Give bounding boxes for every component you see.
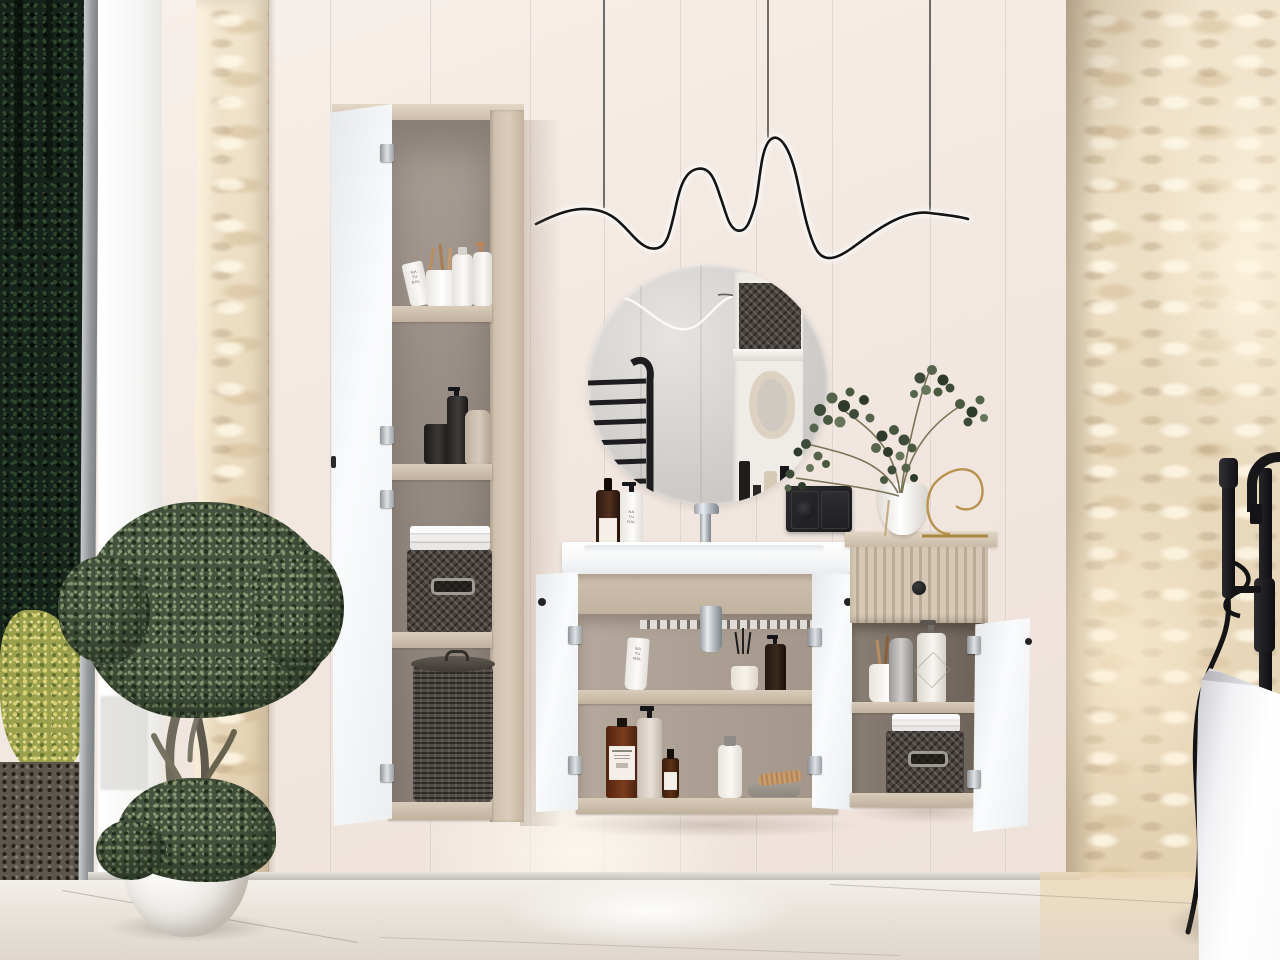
small-cabinet-bottom <box>850 793 987 807</box>
white-cylinder-bottle <box>718 745 742 798</box>
door-hinge <box>967 636 981 654</box>
basin-countertop <box>562 542 850 574</box>
shelf-board <box>390 306 492 322</box>
door-hinge <box>808 756 822 774</box>
white-pump-bottle <box>917 633 946 703</box>
pump-spout <box>767 635 778 639</box>
storage-basket <box>407 550 492 632</box>
reflected-shelf-board <box>733 349 803 361</box>
jamb-reflection <box>100 696 148 790</box>
drawer-knob[interactable] <box>912 581 926 595</box>
siphon-trap <box>700 606 722 652</box>
clear-pump-bottle <box>637 718 662 798</box>
faucet-spout <box>694 503 719 514</box>
stone-column-shadow <box>268 0 276 886</box>
bathtub <box>1192 668 1280 960</box>
diamond-etch <box>914 652 950 688</box>
bottle-label <box>609 746 635 780</box>
tree-canopy-lobe <box>58 556 150 664</box>
small-cabinet-top <box>845 532 997 547</box>
mirror-panel-line <box>700 265 702 505</box>
pump-spout <box>448 387 460 391</box>
tall-cabinet-bottom <box>388 802 492 820</box>
pump-spout <box>622 482 636 486</box>
makeup-brush <box>742 628 744 654</box>
fluted-drawer[interactable] <box>850 547 988 623</box>
door-hinge <box>568 756 582 774</box>
tree-base-bush-lobe <box>96 820 166 880</box>
wand-holder-arm <box>1233 586 1261 593</box>
door-hinge <box>380 764 394 782</box>
stone-column-left <box>193 0 269 886</box>
beige-bottle <box>465 410 491 464</box>
mirror-panel-line <box>640 265 642 505</box>
dropper-bottle <box>662 758 679 798</box>
tree-trunk-outside <box>14 0 23 230</box>
small-cabinet-shelf <box>852 702 985 713</box>
cosmetic-tube: NA TU RAL <box>624 637 650 690</box>
shower-wand-head <box>1219 458 1238 488</box>
basket-handle-slot <box>431 578 475 595</box>
dropper-cap <box>667 749 674 759</box>
pump-spout <box>640 706 654 711</box>
door-knob[interactable] <box>538 598 546 606</box>
bottle-cap <box>724 736 736 746</box>
vanity-door-left[interactable] <box>536 572 578 812</box>
basket-handle-slot <box>908 751 948 767</box>
mirror-reflected-niche <box>733 271 803 505</box>
bathroom-scene: NA TU RAL <box>0 0 1280 960</box>
bottle-cap <box>617 718 627 727</box>
soap-tray <box>748 783 800 797</box>
shelf-board <box>390 632 492 648</box>
tree-canopy-lobe <box>252 548 344 670</box>
pump-spout <box>475 242 485 246</box>
door-hinge <box>967 770 981 788</box>
round-mirror <box>588 265 828 505</box>
reflected-basket <box>739 283 801 349</box>
small-cabinet-door[interactable] <box>973 618 1030 832</box>
tall-cabinet: NA TU RAL <box>328 96 528 832</box>
laundry-basket <box>413 662 493 802</box>
amber-rect-bottle <box>606 726 638 798</box>
dropper-cap <box>604 478 612 491</box>
floor-light-patch <box>500 876 800 946</box>
vanity-shelf-board <box>578 690 836 704</box>
mounting-rail <box>640 620 826 629</box>
door-knob[interactable] <box>1025 638 1032 645</box>
pump-bottle-white <box>473 252 492 306</box>
bottle-label-text: NA TU RAL <box>620 510 643 524</box>
door-hinge <box>380 490 394 508</box>
folded-towels <box>892 714 960 732</box>
amber-dropper-bottle <box>596 490 620 550</box>
small-cabinet <box>845 532 1035 832</box>
pump-spout <box>920 620 936 625</box>
silver-bottle <box>889 638 913 703</box>
dark-pump-bottle <box>765 644 786 691</box>
white-bottle <box>452 254 473 306</box>
door-hinge <box>380 144 394 162</box>
cosmetic-tube-label: NA TU RAL <box>403 268 427 287</box>
folded-towels <box>410 526 490 550</box>
storage-basket <box>886 731 964 793</box>
bottle-label <box>599 518 617 544</box>
door-hinge <box>568 626 582 644</box>
shelf-board <box>390 464 492 480</box>
door-hinge <box>808 628 822 646</box>
spout-connector <box>1250 504 1262 524</box>
tall-cabinet-door[interactable] <box>330 104 392 826</box>
bottle-label <box>664 772 677 790</box>
vanity-bottom-board <box>576 798 838 814</box>
basin-inner-edge <box>584 545 824 553</box>
cosmetic-tube-label: NA TU RAL <box>626 646 649 662</box>
brush-cup <box>731 666 758 691</box>
vanity: NA TU RAL NA TU RAL <box>536 480 852 832</box>
reflected-oval-mirror <box>749 371 795 439</box>
laundry-basket-handle <box>445 650 469 661</box>
door-knob[interactable] <box>331 456 336 468</box>
tree-trunk-outside <box>46 0 53 180</box>
tall-cabinet-side-panel <box>490 110 524 822</box>
bottle-cap <box>458 247 467 255</box>
door-hinge <box>380 426 394 444</box>
